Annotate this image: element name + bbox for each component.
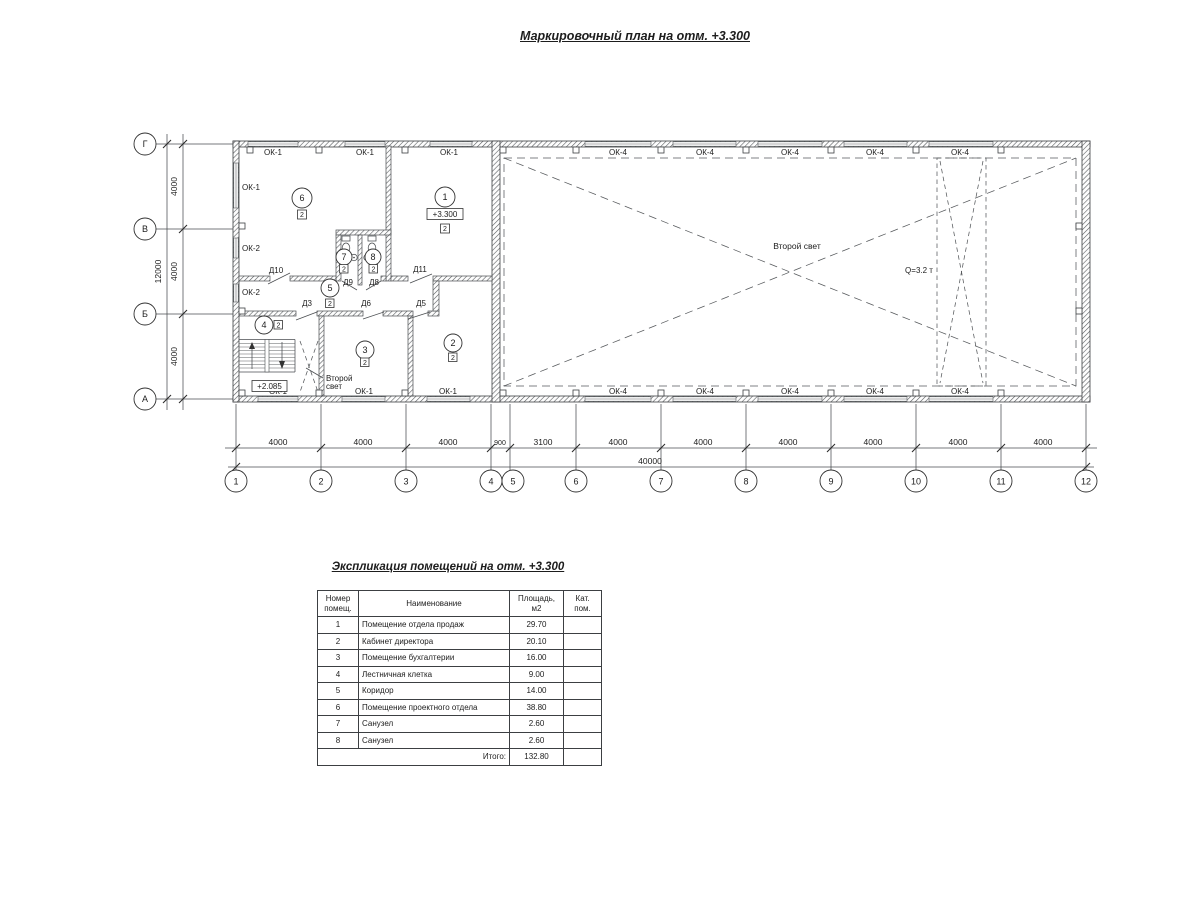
room-number: 1 xyxy=(442,192,447,202)
staircase xyxy=(239,340,295,373)
wall-right xyxy=(1082,141,1090,402)
axis-label: 7 xyxy=(658,477,663,487)
cell-name: Помещение отдела продаж xyxy=(359,617,510,634)
hall-note: Второй свет xyxy=(773,241,821,251)
window-labels: ОК-1 ОК-1 ОК-1 ОК-1 ОК-2 ОК-2 ОК-1 ОК-1 … xyxy=(242,148,970,396)
dim-label: 4000 xyxy=(439,437,458,447)
hall-markings xyxy=(300,158,1076,392)
window-label: ОК-4 xyxy=(781,148,800,157)
dim-label: 4000 xyxy=(779,437,798,447)
door-leaves xyxy=(268,273,432,378)
room-category: 2 xyxy=(443,226,447,233)
cell-area: 2.60 xyxy=(510,732,564,749)
dim-label: 4000 xyxy=(269,437,288,447)
axis-label: 1 xyxy=(233,477,238,487)
window-label: ОК-4 xyxy=(951,387,970,396)
axis-label: Б xyxy=(142,309,148,319)
window-label: ОК-1 xyxy=(356,148,375,157)
window-label: ОК-2 xyxy=(242,244,261,253)
header-number: Номер помещ. xyxy=(318,591,359,617)
window-label: ОК-4 xyxy=(781,387,800,396)
window-label: ОК-1 xyxy=(355,387,374,396)
wall-rooms-4-3 xyxy=(319,316,324,396)
door-label: Д9 xyxy=(343,278,353,287)
header-area: Площадь, м2 xyxy=(510,591,564,617)
dim-total-label: 40000 xyxy=(638,456,662,466)
door-label: Д8 xyxy=(369,278,379,287)
dim-label: 4000 xyxy=(609,437,628,447)
cell-cat xyxy=(564,732,602,749)
window-label: ОК-4 xyxy=(951,148,970,157)
wall-stub xyxy=(381,276,386,281)
dim-label: 4000 xyxy=(864,437,883,447)
schedule-footer: Итого: 132.80 xyxy=(318,749,602,766)
room-category: 2 xyxy=(328,301,332,308)
cell-area: 16.00 xyxy=(510,650,564,667)
cell-num: 2 xyxy=(318,633,359,650)
door-label: Д3 xyxy=(302,299,312,308)
dim-total-label: 12000 xyxy=(153,259,163,283)
cell-num: 3 xyxy=(318,650,359,667)
stair-note-line2: свет xyxy=(326,382,342,391)
cell-area: 14.00 xyxy=(510,683,564,700)
cell-area: 20.10 xyxy=(510,633,564,650)
cell-area: 9.00 xyxy=(510,666,564,683)
cell-name: Лестничная клетка xyxy=(359,666,510,683)
room-schedule-table: Номер помещ. Наименование Площадь, м2 Ка… xyxy=(317,590,602,766)
wall-corridor-bot-a xyxy=(239,311,296,316)
wall-divider xyxy=(492,141,500,402)
windows-top xyxy=(248,142,993,146)
cell-num: 8 xyxy=(318,732,359,749)
axis-label: 10 xyxy=(911,477,921,487)
dim-label: 4000 xyxy=(354,437,373,447)
schedule-row: 5Коридор14.00 xyxy=(318,683,602,700)
axis-label: 6 xyxy=(573,477,578,487)
crane-note: Q=3.2 т xyxy=(905,266,933,275)
wall-room2-west xyxy=(433,281,439,311)
window-label: ОК-4 xyxy=(696,387,715,396)
window-label: ОК-4 xyxy=(609,148,628,157)
wall-rooms-3-2 xyxy=(408,316,413,396)
floor-plan-svg: Г В Б А 4000 4000 4000 12000 4000 xyxy=(0,0,1200,545)
schedule-row: 4Лестничная клетка9.00 xyxy=(318,666,602,683)
window-label: ОК-4 xyxy=(866,387,885,396)
wall-corridor-top-a xyxy=(239,276,270,281)
cell-cat xyxy=(564,716,602,733)
dim-label: 4000 xyxy=(169,347,179,366)
wall-wc-mid xyxy=(358,235,362,285)
cell-num: 5 xyxy=(318,683,359,700)
room-number: 2 xyxy=(450,338,455,348)
schedule-row: 6Помещение проектного отдела38.80 xyxy=(318,699,602,716)
room-category: 2 xyxy=(372,267,376,274)
elevation-label: +3.300 xyxy=(433,210,458,219)
wall-corridor-top-d xyxy=(433,276,492,281)
dim-label: 4000 xyxy=(169,262,179,281)
room-category: 2 xyxy=(300,212,304,219)
total-row: Итого: 132.80 xyxy=(318,749,602,766)
schedule-row: 2Кабинет директора20.10 xyxy=(318,633,602,650)
axis-label: В xyxy=(142,224,148,234)
cell-name: Санузел xyxy=(359,732,510,749)
room-category: 2 xyxy=(277,323,281,330)
cell-cat xyxy=(564,683,602,700)
windows-bottom xyxy=(258,397,993,401)
cell-name: Кабинет директора xyxy=(359,633,510,650)
total-value: 132.80 xyxy=(510,749,564,766)
dim-label: 4000 xyxy=(1034,437,1053,447)
room-number: 4 xyxy=(261,320,266,330)
dim-label: 4000 xyxy=(949,437,968,447)
cell-name: Санузел xyxy=(359,716,510,733)
cell-num: 1 xyxy=(318,617,359,634)
axis-label: 12 xyxy=(1081,477,1091,487)
elevation-label: +2.085 xyxy=(257,382,282,391)
dim-label: 900 xyxy=(494,440,506,447)
cell-area: 29.70 xyxy=(510,617,564,634)
window-label: ОК-2 xyxy=(242,288,261,297)
axis-label: 11 xyxy=(996,477,1005,487)
schedule-row: 1Помещение отдела продаж29.70 xyxy=(318,617,602,634)
room-number: 8 xyxy=(370,252,375,262)
cell-num: 4 xyxy=(318,666,359,683)
room-category: 2 xyxy=(363,360,367,367)
room-number: 3 xyxy=(362,345,367,355)
schedule-header: Номер помещ. Наименование Площадь, м2 Ка… xyxy=(318,591,602,617)
wall-rooms-6-1 xyxy=(386,146,391,281)
window-label: ОК-1 xyxy=(440,148,459,157)
wall-wc-top xyxy=(336,230,391,235)
axis-label: 9 xyxy=(828,477,833,487)
schedule-body: 1Помещение отдела продаж29.702Кабинет ди… xyxy=(318,617,602,749)
cell-cat xyxy=(564,617,602,634)
cell-cat xyxy=(564,633,602,650)
axes-bottom: 4000 4000 4000 900 3100 4000 4000 4000 4… xyxy=(225,404,1097,492)
axis-label: 8 xyxy=(743,477,748,487)
dim-label: 3100 xyxy=(534,437,553,447)
schedule-row: 3Помещение бухгалтерии16.00 xyxy=(318,650,602,667)
cell-num: 6 xyxy=(318,699,359,716)
cell-num: 7 xyxy=(318,716,359,733)
dim-label: 4000 xyxy=(169,177,179,196)
axis-label: А xyxy=(142,394,148,404)
schedule-title: Экспликация помещений на отм. +3.300 xyxy=(317,561,579,573)
toilet-icon xyxy=(368,236,376,241)
room-number: 6 xyxy=(299,193,304,203)
axis-label: 2 xyxy=(318,477,323,487)
window-label: ОК-1 xyxy=(264,148,283,157)
door-label: Д11 xyxy=(413,265,427,274)
total-category-cell xyxy=(564,749,602,766)
schedule-row: 7Санузел2.60 xyxy=(318,716,602,733)
wall-corridor-bot-c xyxy=(383,311,413,316)
schedule-row: 8Санузел2.60 xyxy=(318,732,602,749)
window-label: ОК-4 xyxy=(866,148,885,157)
dim-label: 4000 xyxy=(694,437,713,447)
cell-name: Коридор xyxy=(359,683,510,700)
page: { "page": { "title": "Маркировочный план… xyxy=(0,0,1200,900)
window-label: ОК-4 xyxy=(696,148,715,157)
cell-name: Помещение бухгалтерии xyxy=(359,650,510,667)
door-label: Д10 xyxy=(269,266,284,275)
cell-cat xyxy=(564,699,602,716)
header-name: Наименование xyxy=(359,591,510,617)
room-number: 5 xyxy=(327,283,332,293)
toilet-icon xyxy=(342,236,350,241)
total-label: Итого: xyxy=(318,749,510,766)
window-label: ОК-4 xyxy=(609,387,628,396)
axis-label: Г xyxy=(143,139,148,149)
wall-corridor-bot-b xyxy=(317,311,363,316)
wall-corridor-top-c xyxy=(391,276,408,281)
room-number: 7 xyxy=(341,252,346,262)
window-label: ОК-1 xyxy=(242,183,261,192)
axis-label: 5 xyxy=(510,477,515,487)
header-category: Кат. пом. xyxy=(564,591,602,617)
axes-left: Г В Б А 4000 4000 4000 12000 xyxy=(134,133,233,410)
cell-area: 2.60 xyxy=(510,716,564,733)
axis-label: 3 xyxy=(403,477,408,487)
cell-area: 38.80 xyxy=(510,699,564,716)
cell-cat xyxy=(564,666,602,683)
axis-label: 4 xyxy=(488,477,493,487)
cell-name: Помещение проектного отдела xyxy=(359,699,510,716)
door-label: Д6 xyxy=(361,299,371,308)
room-category: 2 xyxy=(451,355,455,362)
room-category: 2 xyxy=(342,267,346,274)
door-label: Д5 xyxy=(416,299,426,308)
window-label: ОК-1 xyxy=(439,387,458,396)
cell-cat xyxy=(564,650,602,667)
